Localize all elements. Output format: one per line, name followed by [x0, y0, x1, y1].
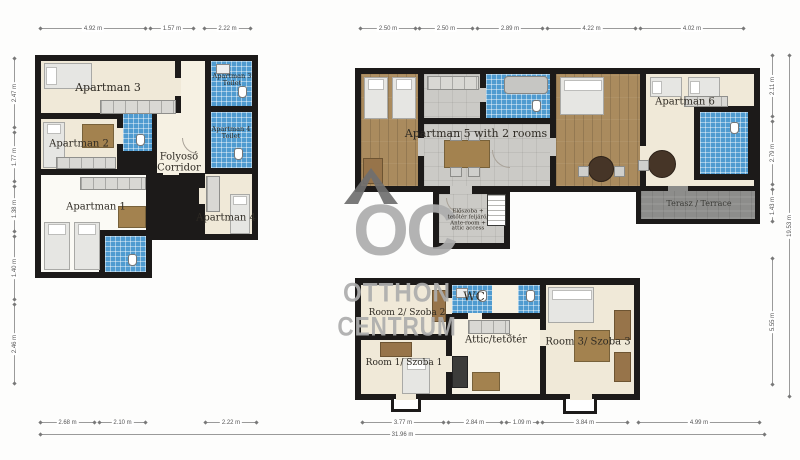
kitchen-counter — [468, 320, 510, 334]
toilet — [128, 254, 137, 266]
door-gap — [199, 188, 205, 204]
toilet — [526, 290, 535, 302]
door-gap — [570, 394, 592, 400]
bathtub — [504, 76, 548, 94]
dimension: 5.55 m — [772, 258, 773, 385]
room-label-apartman-4-toilet: Apartman 4Toilet — [212, 126, 251, 140]
dimension: 2.79 m — [772, 121, 773, 185]
door-gap — [550, 138, 556, 156]
dimension: 2.22 m — [204, 28, 251, 29]
bed — [364, 77, 388, 119]
room-label-anteroom: Előszoba +tetőtér feljáró/Ante-room +att… — [448, 209, 489, 232]
chair — [450, 167, 462, 177]
wc-lobby — [492, 285, 518, 313]
bed — [392, 77, 416, 119]
kitchen-counter — [100, 100, 176, 114]
dimension: 2.22 m — [205, 422, 257, 423]
dimension: 2.50 m — [419, 28, 473, 29]
chair — [578, 166, 589, 177]
dimension: 4.92 m — [40, 28, 146, 29]
dresser — [614, 352, 631, 382]
chair — [638, 160, 649, 171]
floor-plan-canvas: Apartman 3 Apartman 3Toilet Apartman 4To… — [0, 0, 800, 460]
door-gap — [468, 313, 482, 319]
bed — [74, 222, 100, 270]
dimension: 1.38 m — [14, 186, 15, 232]
chair — [614, 166, 625, 177]
door-gap — [668, 186, 688, 191]
dimension: 2.46 m — [14, 304, 15, 384]
dimension: 1.40 m — [14, 236, 15, 300]
dimension: 4.22 m — [547, 28, 636, 29]
stairs — [487, 194, 506, 226]
room-label-apartman-2: Apartman 2 — [49, 140, 109, 151]
room-label-room-3: Room 3/ Szoba 3 — [545, 338, 630, 349]
chair — [468, 167, 480, 177]
bed — [44, 222, 70, 270]
toilet — [234, 148, 243, 160]
dimension: 1.77 m — [14, 132, 15, 182]
double-bed — [548, 287, 594, 323]
room-label-apartman-4: Apartman 4 — [196, 214, 256, 225]
dimension: 4.99 m — [638, 422, 760, 423]
room-label-apartman-5: Apartman 5 with 2 rooms — [405, 128, 547, 140]
dining-table — [444, 140, 490, 168]
watermark-line-1: OTTHON — [343, 278, 451, 309]
watermark-logo: OC — [353, 190, 455, 272]
room-label-apartman-6: Apartman 6 — [655, 98, 715, 109]
dimension: 2.47 m — [14, 58, 15, 128]
dimension: 1.57 m — [150, 28, 194, 29]
toilet — [730, 122, 739, 134]
room-label-apartman-3-toilet: Apartman 3Toilet — [213, 73, 252, 87]
dimension: 4.02 m — [640, 28, 744, 29]
kitchen-counter — [427, 76, 479, 90]
door-gap — [117, 128, 123, 144]
dresser — [614, 310, 631, 340]
bed — [688, 77, 720, 97]
toilet — [532, 100, 541, 112]
entry-step — [394, 399, 418, 409]
kitchen-counter — [206, 176, 220, 212]
appliance — [452, 356, 468, 388]
round-table — [648, 150, 676, 178]
room-label-apartman-1: Apartman 1 — [66, 203, 126, 214]
dimension: 2.10 m — [99, 422, 146, 423]
table — [472, 372, 500, 391]
door-gap — [396, 394, 416, 400]
toilet — [238, 86, 247, 98]
bed — [650, 77, 682, 97]
room-label-terrace: Terasz / Terrace — [666, 200, 731, 208]
room-label-wc: WC — [463, 291, 485, 304]
dimension: 2.50 m — [360, 28, 416, 29]
kitchen-counter — [80, 177, 146, 190]
room-label-room-2: Room 2/ Szoba 2 — [369, 309, 446, 319]
round-table — [588, 156, 614, 182]
door-gap — [480, 88, 486, 102]
room-label-room-1: Room 1/ Szoba 1 — [366, 359, 443, 369]
dimension: 2.84 m — [448, 422, 502, 423]
dimension: 1.43 m — [772, 189, 773, 222]
room-label-attic: Attic/tetőtér — [465, 336, 527, 347]
entry-step — [566, 399, 594, 411]
dimension: 1.09 m — [506, 422, 538, 423]
room-label-corridor: FolyosóCorridor — [157, 152, 201, 173]
dimension: 2.89 m — [477, 28, 543, 29]
apartman-6-bath — [700, 112, 748, 174]
apartman-1-bath — [105, 236, 146, 272]
room-label-apartman-3: Apartman 3 — [75, 82, 141, 94]
door-gap — [175, 78, 181, 96]
door-gap — [418, 138, 424, 156]
dresser — [380, 342, 412, 357]
room-apartman-4-toilet — [211, 112, 252, 168]
dimension-total-height: 19.53 m — [789, 55, 790, 397]
dimension: 2.11 m — [772, 55, 773, 117]
dimension: 3.84 m — [542, 422, 628, 423]
dimension: 2.68 m — [40, 422, 95, 423]
double-bed — [560, 77, 604, 115]
kitchen-counter — [56, 157, 116, 169]
dimension-total-width: 31.96 m — [40, 434, 765, 435]
dimension: 3.77 m — [362, 422, 444, 423]
toilet — [136, 134, 145, 146]
